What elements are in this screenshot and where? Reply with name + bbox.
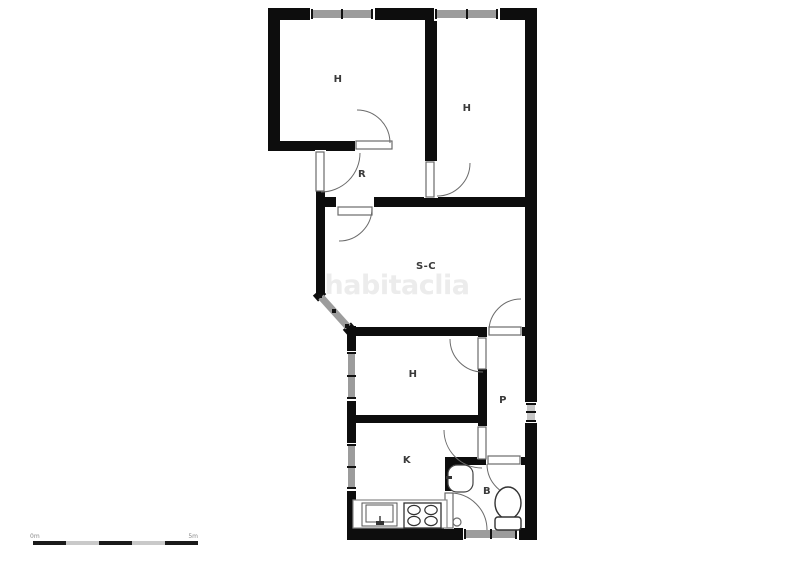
watermark-text: habitaclia	[325, 270, 470, 301]
door-leaf	[489, 327, 521, 335]
door-arc	[450, 493, 487, 530]
toilet-icon	[495, 487, 521, 530]
door-leaf	[316, 152, 324, 191]
window-icon	[434, 7, 500, 21]
door-arc	[357, 110, 390, 143]
floor-plan-drawing: habitaclia	[0, 0, 800, 565]
door-leaf	[488, 456, 520, 464]
door-leaf	[356, 141, 392, 149]
door-arc	[437, 163, 470, 196]
door-leaf	[426, 162, 434, 197]
room-label-kitchen: K	[403, 455, 412, 466]
room-label-living-dining: S-C	[416, 261, 436, 272]
door-arc	[321, 153, 360, 192]
kitchen-sink-icon	[362, 503, 397, 526]
window-icon	[346, 351, 357, 401]
door-leaf	[478, 427, 486, 459]
room-label-hall: R	[358, 169, 366, 180]
window-icon	[524, 402, 538, 423]
window-icon	[310, 7, 375, 21]
floor-plan-page: habitaclia	[0, 0, 800, 565]
stove-icon	[404, 503, 441, 528]
door-detail-icon	[453, 518, 461, 526]
room-label-bathroom: B	[483, 486, 491, 497]
room-label-bedroom-3: H	[409, 369, 418, 380]
door-leaf	[338, 207, 372, 215]
scale-bar: 0m 5m	[30, 533, 198, 545]
window-icon	[346, 443, 357, 491]
scale-end-label: 5m	[188, 533, 198, 540]
washbasin-icon	[446, 465, 473, 492]
kitchen-counter-icon	[353, 500, 447, 528]
scale-start-label: 0m	[30, 533, 40, 540]
room-label-corridor: P	[499, 395, 507, 406]
room-label-bedroom-2: H	[463, 103, 472, 114]
room-label-bedroom-1: H	[334, 74, 343, 85]
door-leaf	[478, 338, 486, 369]
